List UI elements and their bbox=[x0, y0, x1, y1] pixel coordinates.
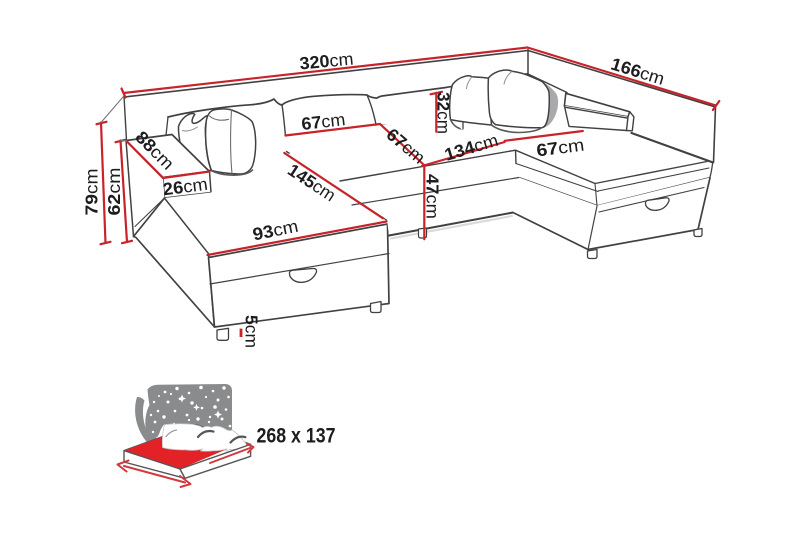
svg-text:5cm: 5cm bbox=[242, 315, 262, 348]
svg-text:67cm: 67cm bbox=[300, 109, 346, 134]
svg-text:32cm: 32cm bbox=[434, 92, 454, 134]
svg-text:320cm: 320cm bbox=[299, 49, 355, 74]
svg-text:47cm: 47cm bbox=[423, 174, 443, 219]
svg-text:268 x 137: 268 x 137 bbox=[257, 425, 336, 448]
svg-text:79cm: 79cm bbox=[82, 169, 102, 216]
svg-text:62cm: 62cm bbox=[104, 168, 124, 216]
